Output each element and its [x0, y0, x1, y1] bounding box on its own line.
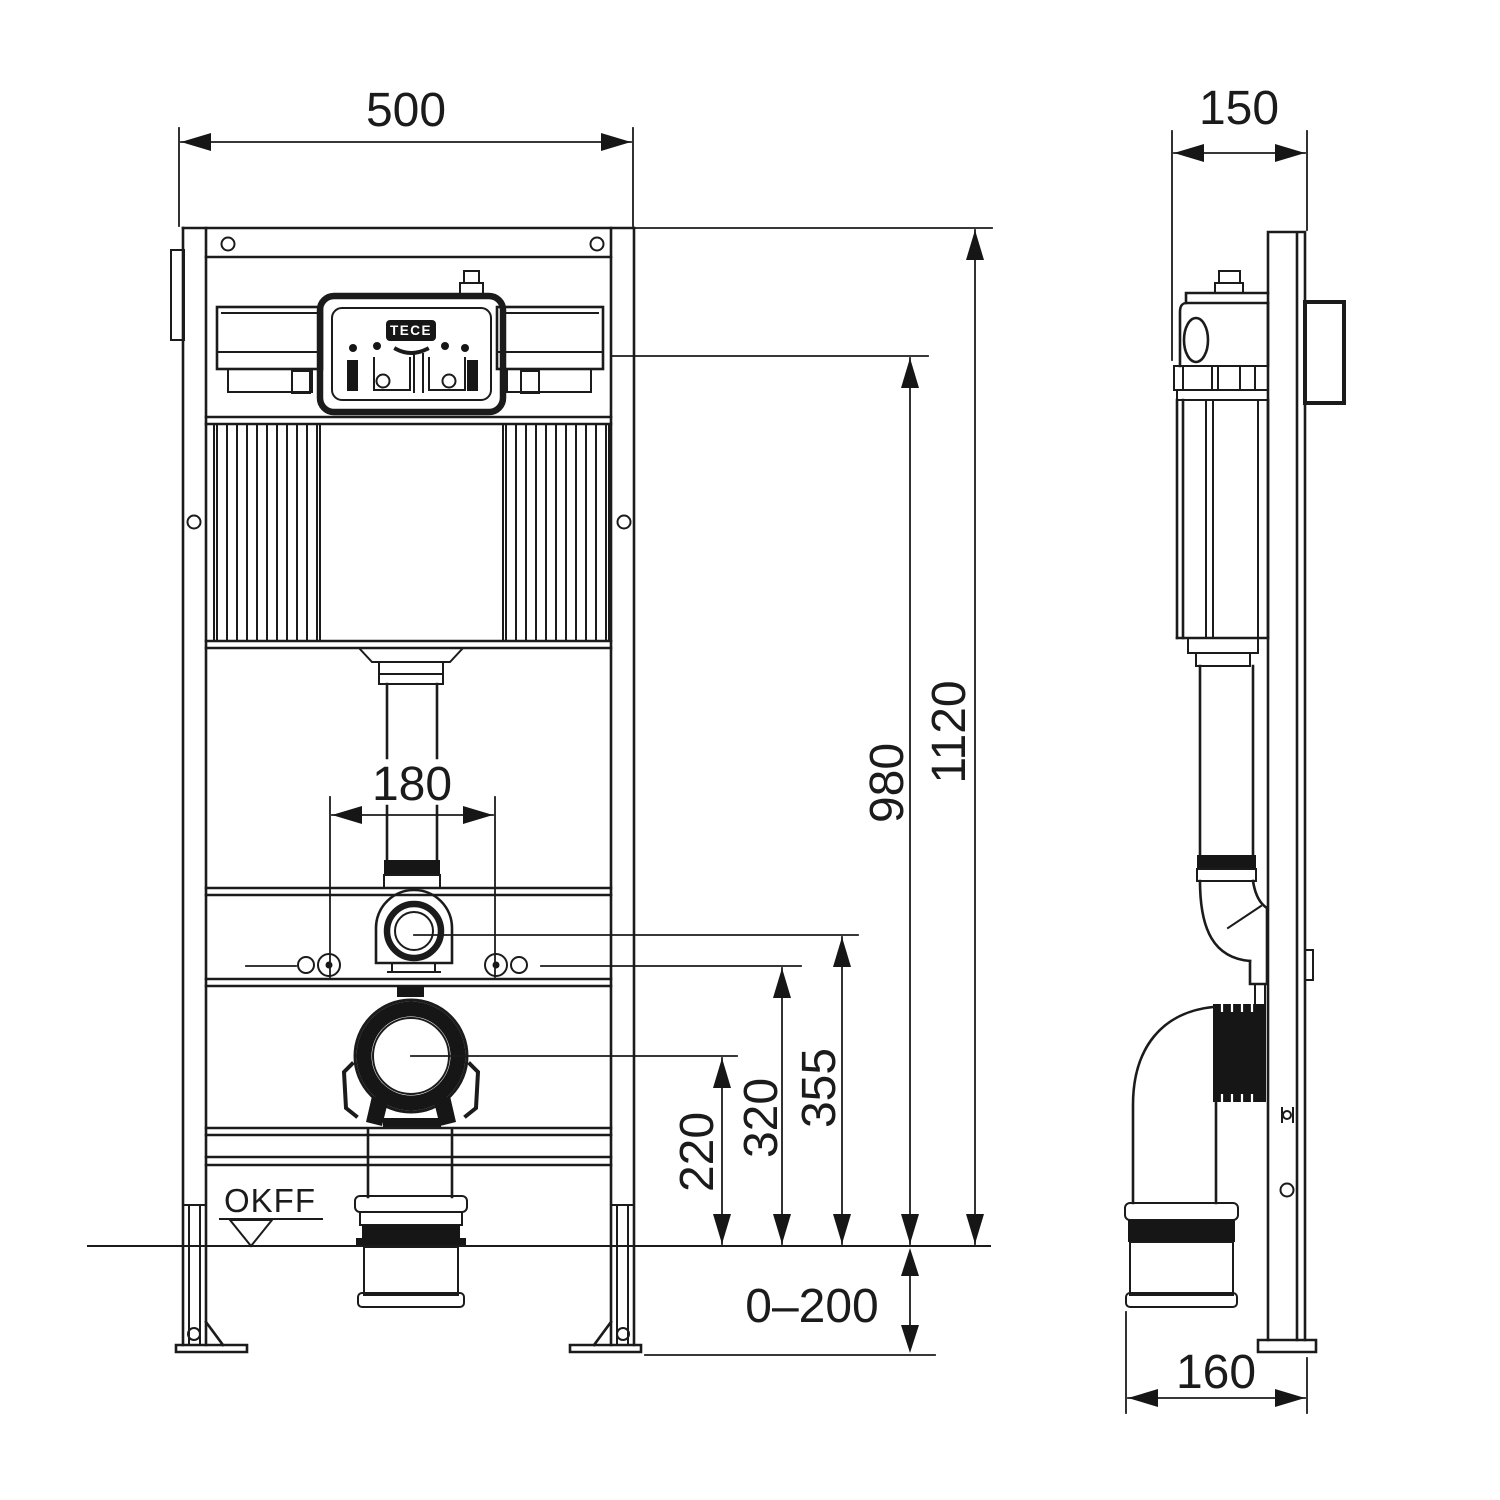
wc-connection-block: [1213, 1004, 1266, 1102]
cistern-insulation: [206, 417, 611, 648]
dimension-waste-center-height: 220: [671, 1058, 731, 1244]
dimension-leg-adjustment: 0–200: [645, 1248, 935, 1355]
fill-valve-cap: [1219, 271, 1240, 283]
pipe-coupling: [384, 860, 440, 875]
logo-arc: [396, 349, 427, 353]
dimension-frame-height: 1120: [923, 230, 984, 1244]
frame-feet: [176, 1322, 641, 1352]
dim-label-355: 355: [793, 1048, 846, 1128]
side-view: [1125, 232, 1344, 1352]
dim-label-160: 160: [1176, 1346, 1256, 1399]
flush-elbow-assembly: [206, 888, 611, 986]
side-rail: [1258, 232, 1344, 1352]
dim-label-180: 180: [372, 758, 452, 811]
dimension-bolt-height: 320: [735, 968, 791, 1244]
dim-label-500: 500: [366, 84, 446, 137]
side-foot: [1258, 1340, 1316, 1352]
wall-bracket: [1305, 302, 1344, 403]
front-view: TECE: [88, 228, 990, 1352]
dimension-cistern-ref-height: 980: [861, 358, 919, 1244]
floor-level: OKFF: [88, 1182, 990, 1246]
dim-label-320: 320: [735, 1078, 788, 1158]
dimension-annotations: 500 150 180 220: [179, 82, 1307, 1413]
dim-label-980: 980: [861, 743, 914, 823]
installation-frame-drawing: TECE: [0, 0, 1500, 1500]
screw-hole: [591, 238, 604, 251]
dimension-outlet-offset: 160: [1126, 1312, 1307, 1413]
dim-label-1120: 1120: [923, 680, 976, 783]
screw-hole: [188, 516, 201, 529]
waste-bend-ring: [344, 986, 478, 1128]
screw-hole: [222, 238, 235, 251]
dim-label-150: 150: [1199, 82, 1279, 135]
dimension-front-width: 500: [179, 84, 633, 226]
dimension-flush-bend-height: 355: [793, 937, 851, 1244]
cistern-side: [1174, 271, 1268, 666]
level-triangle-icon: [230, 1220, 272, 1246]
dim-label-0-200: 0–200: [745, 1280, 878, 1333]
cistern-top-module: TECE: [217, 271, 603, 412]
dim-label-220: 220: [671, 1112, 724, 1192]
screw-hole: [618, 516, 631, 529]
brand-logo-text: TECE: [390, 323, 432, 338]
technical-drawing-page: TECE: [0, 0, 1500, 1500]
flush-pipe-side: [1197, 666, 1267, 1004]
floor-marker-label: OKFF: [224, 1182, 316, 1219]
flush-plate-window: TECE: [320, 296, 503, 412]
